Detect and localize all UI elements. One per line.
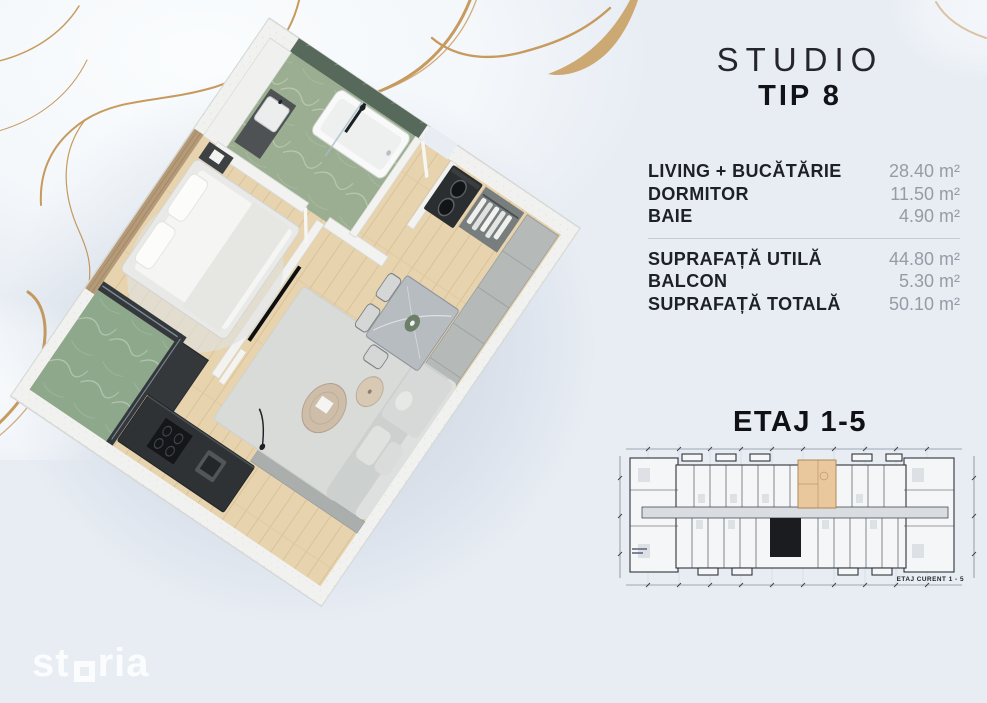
area-label: DORMITOR [648, 183, 749, 206]
area-row: DORMITOR 11.50 m² [648, 183, 960, 206]
storia-text-left: st [32, 643, 70, 683]
area-row: LIVING + BUCĂTĂRIE 28.40 m² [648, 160, 960, 183]
corridor [642, 507, 948, 518]
area-value: 5.30 m² [899, 270, 960, 293]
highlighted-unit [798, 460, 836, 508]
area-value: 4.90 m² [899, 205, 960, 228]
storia-square-o [74, 661, 95, 682]
area-label: SUPRAFAȚĂ TOTALĂ [648, 293, 841, 316]
area-row: SUPRAFAȚĂ TOTALĂ 50.10 m² [648, 293, 960, 316]
building-floorplan: ETAJ CURENT 1 - 5 [612, 438, 984, 596]
floorplan-caption: ETAJ CURENT 1 - 5 [897, 576, 964, 583]
title-block: STUDIO TIP 8 [618, 42, 982, 114]
apartment-3d-floorplan [0, 0, 620, 660]
area-row: BALCON 5.30 m² [648, 270, 960, 293]
table-divider [648, 238, 960, 239]
area-value: 50.10 m² [889, 293, 960, 316]
area-label: SUPRAFAȚĂ UTILĂ [648, 248, 822, 271]
stair-core [770, 518, 801, 557]
area-label: LIVING + BUCĂTĂRIE [648, 160, 842, 183]
area-value: 44.80 m² [889, 248, 960, 271]
listing-floorplan-page: { "header": { "title": "STUDIO", "subtit… [0, 0, 987, 703]
area-label: BAIE [648, 205, 693, 228]
area-value: 11.50 m² [890, 183, 960, 206]
area-table: LIVING + BUCĂTĂRIE 28.40 m² DORMITOR 11.… [648, 160, 960, 315]
floor-heading: ETAJ 1-5 [618, 406, 982, 439]
storia-logo: stria [32, 643, 150, 683]
area-value: 28.40 m² [889, 160, 960, 183]
area-label: BALCON [648, 270, 727, 293]
plan-title: STUDIO [618, 42, 982, 78]
area-row: BAIE 4.90 m² [648, 205, 960, 228]
plan-subtitle: TIP 8 [618, 80, 982, 113]
storia-text-right: ria [98, 643, 150, 683]
area-row: SUPRAFAȚĂ UTILĂ 44.80 m² [648, 248, 960, 271]
